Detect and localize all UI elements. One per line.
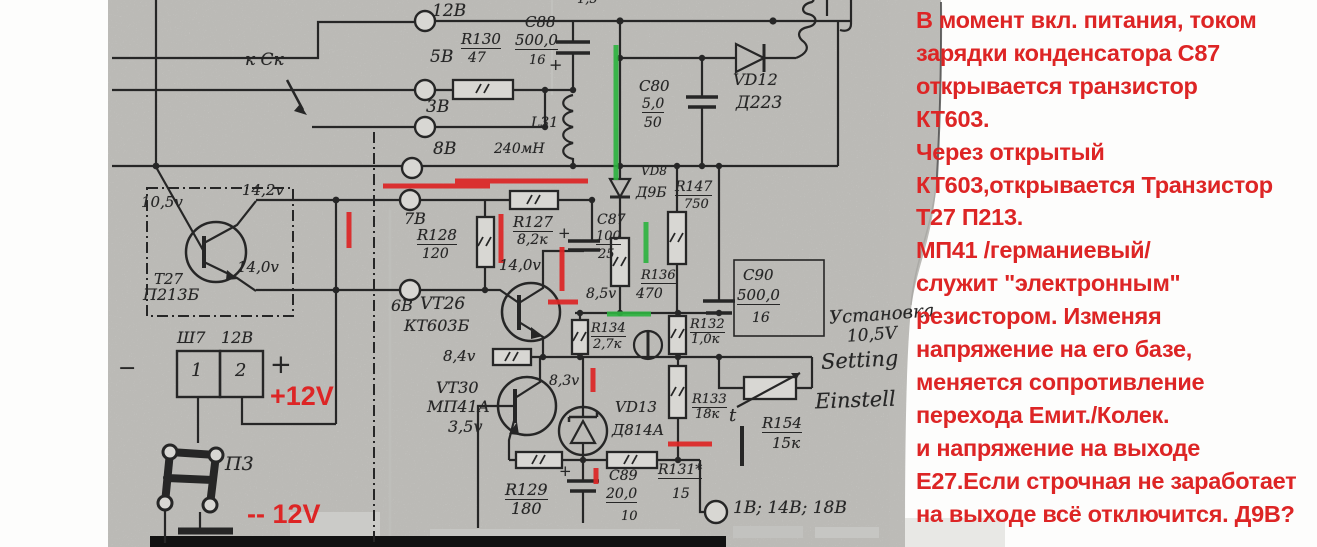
resistor-r133 <box>669 366 686 418</box>
annotation-line-4: КТ603. <box>916 103 1317 136</box>
annotation-line-13: перехода Емит./Колек. <box>916 399 1317 432</box>
pin-3v-circle <box>415 117 435 137</box>
annotation-line-5: Через открытый <box>916 136 1317 169</box>
scan-artifact <box>733 526 803 538</box>
resistor-r147 <box>668 212 686 264</box>
annotation-line-8: МП41 /германиевый/ <box>916 234 1317 267</box>
annotation-line-11: напряжение на его базе, <box>916 333 1317 366</box>
pin-7v-circle <box>400 190 420 210</box>
resistor-r131 <box>607 452 657 468</box>
scan-artifact <box>290 512 380 536</box>
resistor-r132 <box>669 316 686 354</box>
annotation-line-10: резистором. Изменяя <box>916 300 1317 333</box>
resistor-r129 <box>516 452 562 468</box>
annotation-line-15: Е27.Если строчная не заработает <box>916 465 1317 498</box>
pin-6v-circle <box>400 280 420 300</box>
scanned-schematic-page: 12В5В3В8В7В6Вк Ск1,5R13047С88500,016+L31… <box>0 0 1317 547</box>
annotation-line-6: КТ603,открывается Транзистор <box>916 169 1317 202</box>
resistor-r136 <box>611 238 629 286</box>
scan-artifact <box>815 527 879 538</box>
annotation-text-panel: В момент вкл. питания, токомзарядки конд… <box>916 4 1317 531</box>
annotation-line-14: и напряжение на выходе <box>916 432 1317 465</box>
black-scan-bar <box>150 536 726 547</box>
annotation-line-1: В момент вкл. питания, током <box>916 4 1317 37</box>
output-test-point <box>705 501 727 523</box>
resistor-r130 <box>453 80 513 99</box>
annotation-line-9: служит "электронным" <box>916 267 1317 300</box>
pin-5v-circle <box>415 80 435 100</box>
annotation-line-2: зарядки конденсатора С87 <box>916 37 1317 70</box>
annotation-line-7: Т27 П213. <box>916 201 1317 234</box>
resistor-unlabeled <box>493 349 531 365</box>
pin-8v-circle <box>402 158 422 178</box>
annotation-line-3: открывается транзистор <box>916 70 1317 103</box>
pin-12v-circle <box>415 11 435 31</box>
annotation-line-16: на выходе всё отключится. Д9В? <box>916 498 1317 531</box>
resistor-r127 <box>510 191 558 209</box>
annotation-line-12: меняется сопротивление <box>916 366 1317 399</box>
